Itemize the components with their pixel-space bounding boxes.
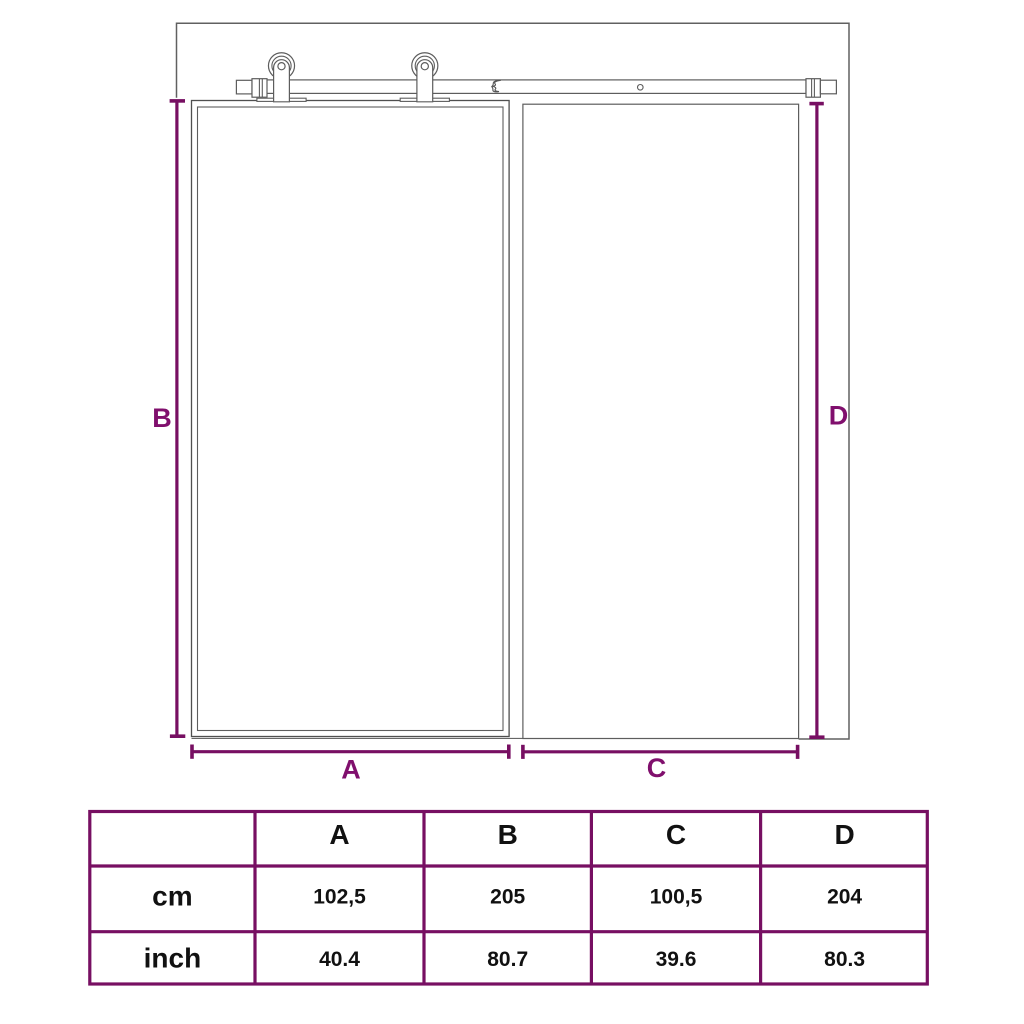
svg-text:inch: inch bbox=[144, 943, 202, 974]
svg-text:A: A bbox=[329, 819, 349, 850]
svg-text:80.7: 80.7 bbox=[487, 948, 528, 971]
svg-text:B: B bbox=[498, 819, 518, 850]
svg-text:204: 204 bbox=[827, 886, 862, 909]
svg-text:39.6: 39.6 bbox=[656, 948, 697, 971]
svg-text:A: A bbox=[341, 754, 361, 784]
svg-text:D: D bbox=[834, 819, 854, 850]
svg-text:cm: cm bbox=[152, 881, 192, 912]
svg-text:C: C bbox=[647, 753, 667, 783]
svg-text:100,5: 100,5 bbox=[650, 886, 703, 909]
svg-text:B: B bbox=[152, 403, 172, 433]
svg-text:40.4: 40.4 bbox=[319, 948, 360, 971]
svg-text:80.3: 80.3 bbox=[824, 948, 865, 971]
svg-text:205: 205 bbox=[490, 886, 525, 909]
svg-text:102,5: 102,5 bbox=[313, 886, 366, 909]
svg-text:C: C bbox=[666, 819, 686, 850]
svg-text:D: D bbox=[829, 400, 849, 430]
